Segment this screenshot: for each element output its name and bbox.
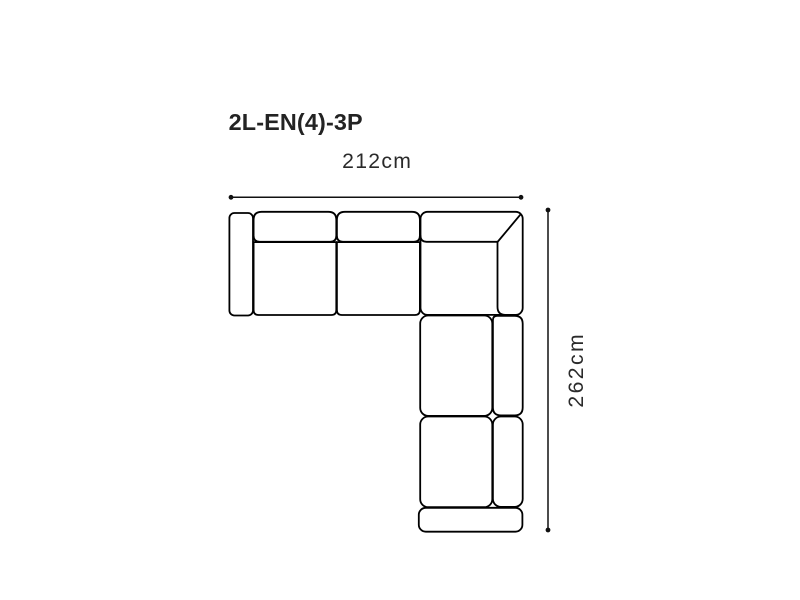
svg-text:212cm: 212cm <box>342 150 412 173</box>
svg-text:262cm: 262cm <box>565 332 588 408</box>
svg-text:2L-EN(4)-3P: 2L-EN(4)-3P <box>229 109 363 135</box>
